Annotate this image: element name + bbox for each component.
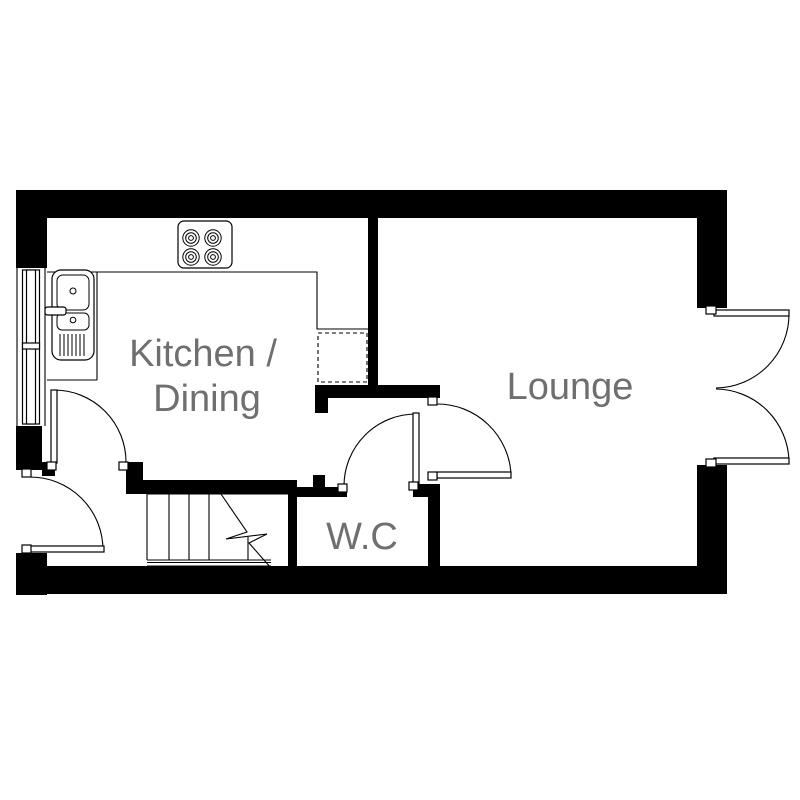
double-doors-icon bbox=[706, 306, 789, 467]
appliance-space-icon bbox=[318, 333, 367, 382]
french-door-top-leaf bbox=[714, 310, 789, 316]
window-icon bbox=[17, 268, 45, 426]
stairs-treads bbox=[169, 494, 248, 560]
french-door-bottom-arc bbox=[716, 389, 789, 461]
kitchen-door-leaf bbox=[51, 390, 57, 463]
lounge-door bbox=[428, 397, 511, 480]
room-labels: Kitchen / Dining Lounge W.C bbox=[129, 333, 633, 558]
counter-top-edge bbox=[47, 272, 368, 329]
wc-door bbox=[338, 413, 419, 492]
wc-door-latch-jamb bbox=[338, 484, 347, 492]
kitchen-door-arc bbox=[54, 390, 126, 462]
kitchen-dining-label-line2: Dining bbox=[153, 378, 261, 420]
french-door-bottom-jamb bbox=[706, 459, 716, 467]
stairs-base-lines bbox=[147, 563, 271, 567]
left-wall-upper bbox=[16, 190, 47, 268]
front-door-arc bbox=[30, 477, 103, 550]
hob-icon bbox=[178, 221, 232, 268]
wc-wall-nib bbox=[313, 475, 325, 489]
stairs-icon bbox=[147, 494, 288, 568]
french-door-bottom-leaf bbox=[714, 458, 789, 464]
sink-drainer-lines bbox=[60, 334, 84, 356]
kitchen-door-latch-jamb bbox=[119, 462, 128, 470]
wc-right-wall bbox=[428, 484, 440, 568]
bottom-wall bbox=[16, 566, 727, 594]
wc-door-hinge-jamb bbox=[409, 482, 418, 490]
kitchen-dining-label-line1: Kitchen / bbox=[129, 333, 277, 375]
front-door-leaf bbox=[29, 546, 104, 552]
lounge-door-top-jamb bbox=[428, 397, 437, 405]
sink-icon bbox=[45, 270, 94, 360]
hall-wall-nib bbox=[315, 385, 328, 413]
lounge-door-hinge-jamb bbox=[428, 472, 437, 480]
lounge-door-leaf bbox=[437, 472, 511, 478]
stairs-break-line bbox=[221, 494, 271, 568]
wc-label: W.C bbox=[326, 516, 398, 558]
left-wall-mid bbox=[16, 426, 42, 470]
top-wall bbox=[16, 190, 727, 218]
kitchen-door bbox=[47, 390, 128, 470]
front-door-hinge-jamb bbox=[22, 545, 31, 553]
french-door-top-jamb bbox=[706, 306, 716, 314]
wc-door-leaf bbox=[413, 413, 419, 485]
right-wall-upper bbox=[697, 218, 727, 308]
wc-door-arc bbox=[344, 414, 416, 486]
french-door-top-arc bbox=[716, 314, 789, 388]
front-door-top-jamb bbox=[22, 469, 31, 477]
window-transom bbox=[23, 343, 40, 349]
stairs-north-wall bbox=[126, 480, 297, 494]
floor-plan-svg: Kitchen / Dining Lounge W.C bbox=[0, 0, 800, 800]
hall-top-wall bbox=[315, 385, 440, 398]
lounge-door-arc bbox=[437, 404, 511, 475]
front-door bbox=[22, 469, 104, 553]
wc-left-wall bbox=[288, 487, 297, 568]
floor-plan: Kitchen / Dining Lounge W.C bbox=[0, 0, 800, 800]
right-wall-lower bbox=[697, 465, 727, 594]
kitchen-lounge-divider-wall bbox=[368, 218, 378, 398]
kitchen-door-hinge-jamb bbox=[47, 462, 56, 470]
stairs-outline bbox=[147, 494, 288, 560]
lounge-label: Lounge bbox=[507, 366, 634, 408]
sink-faucet bbox=[45, 307, 66, 315]
